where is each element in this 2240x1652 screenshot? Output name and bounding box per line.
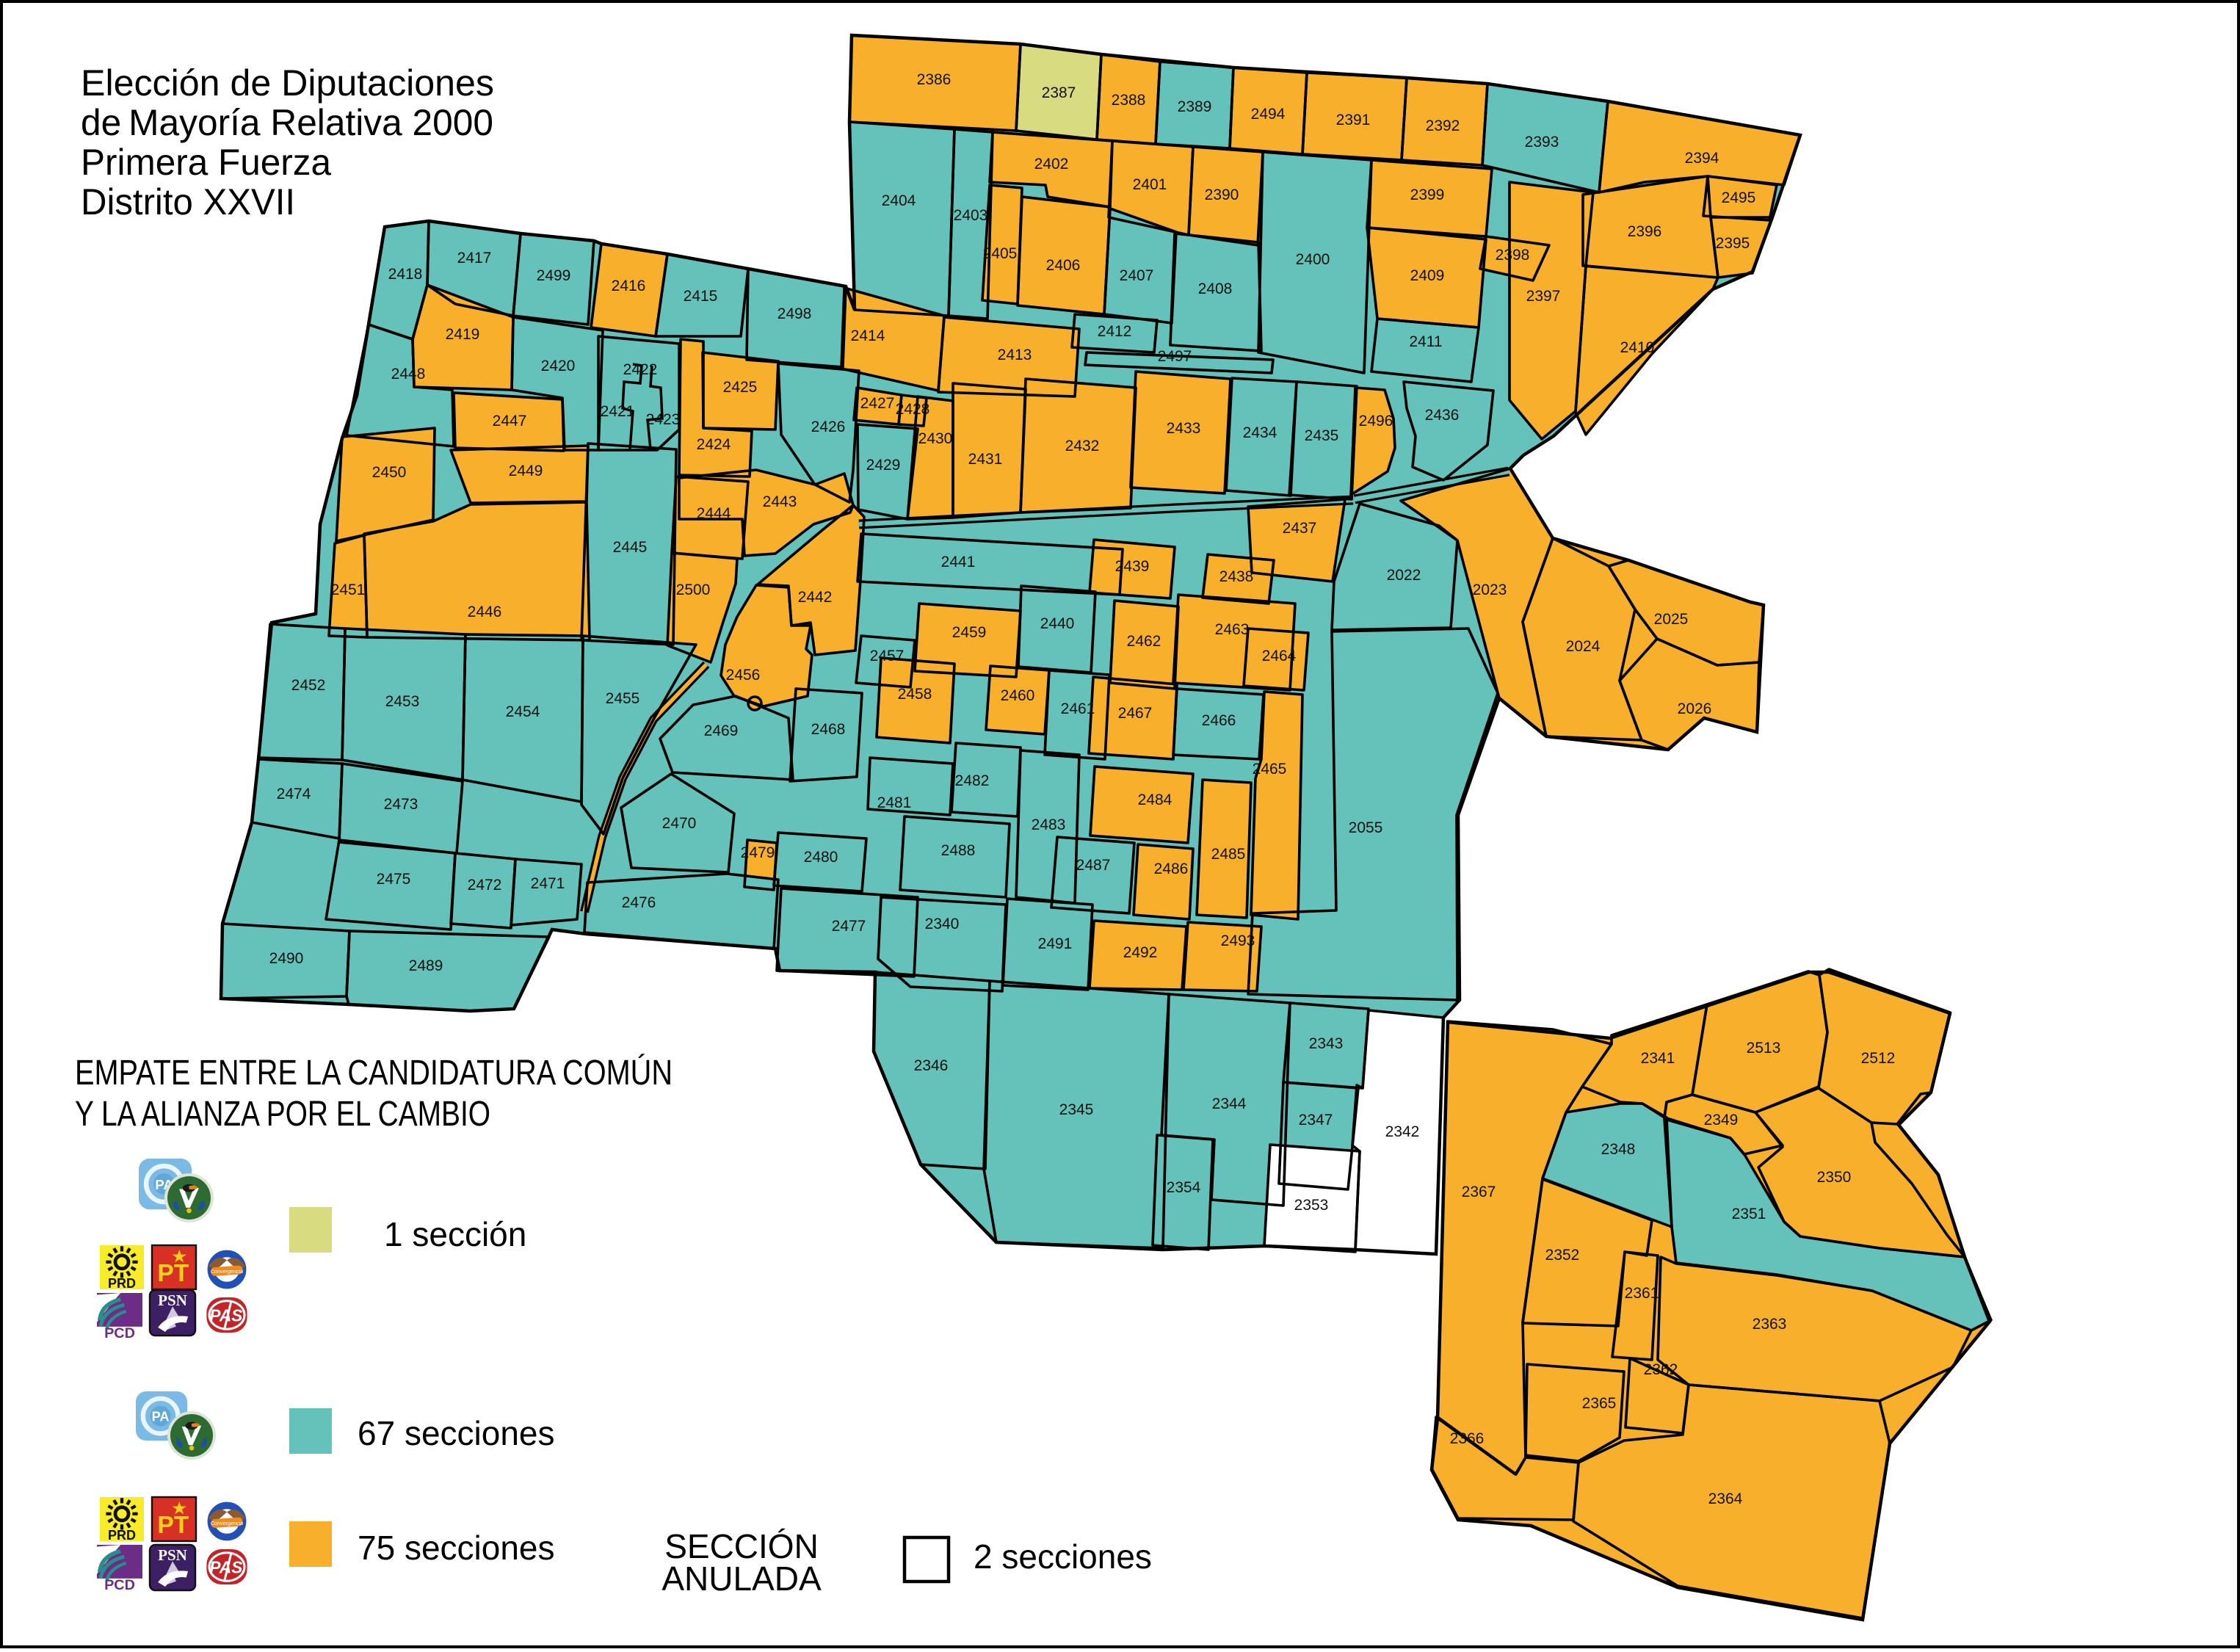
svg-text:2341: 2341: [1641, 1050, 1675, 1067]
svg-text:2434: 2434: [1243, 424, 1277, 441]
svg-text:2433: 2433: [1167, 420, 1201, 437]
svg-text:2452: 2452: [291, 677, 326, 694]
svg-text:2470: 2470: [662, 815, 697, 832]
svg-text:1 sección: 1 sección: [384, 1215, 526, 1253]
svg-text:2398: 2398: [1496, 247, 1530, 264]
svg-text:2354: 2354: [1167, 1179, 1201, 1196]
svg-text:2414: 2414: [851, 327, 885, 344]
svg-text:2353: 2353: [1294, 1197, 1329, 1214]
svg-text:75 secciones: 75 secciones: [358, 1529, 555, 1567]
svg-text:Convergencia: Convergencia: [211, 1268, 243, 1275]
svg-text:2469: 2469: [704, 722, 739, 739]
svg-text:2403: 2403: [954, 207, 988, 224]
svg-text:2492: 2492: [1123, 944, 1158, 961]
svg-text:2397: 2397: [1526, 288, 1561, 305]
svg-text:2443: 2443: [763, 493, 797, 510]
svg-text:2431: 2431: [968, 451, 1003, 468]
svg-text:2459: 2459: [952, 624, 987, 641]
svg-text:2472: 2472: [468, 877, 502, 894]
svg-text:2480: 2480: [804, 849, 838, 866]
svg-text:2458: 2458: [898, 686, 932, 703]
svg-text:2411: 2411: [1409, 333, 1442, 350]
svg-text:2416: 2416: [612, 278, 646, 294]
svg-text:2024: 2024: [1566, 638, 1601, 655]
svg-text:de Mayoría Relativa 2000: de Mayoría Relativa 2000: [81, 102, 493, 143]
svg-text:2425: 2425: [723, 379, 758, 396]
svg-text:2349: 2349: [1704, 1112, 1739, 1128]
svg-text:2479: 2479: [741, 844, 775, 861]
svg-text:2473: 2473: [384, 796, 418, 813]
svg-text:Convergencia: Convergencia: [211, 1520, 243, 1526]
svg-text:2026: 2026: [1678, 700, 1712, 717]
svg-text:2401: 2401: [1133, 176, 1167, 193]
svg-text:PT: PT: [157, 1512, 189, 1539]
svg-text:2512: 2512: [1861, 1050, 1896, 1067]
svg-text:2484: 2484: [1138, 791, 1172, 808]
svg-text:2500: 2500: [676, 582, 711, 598]
svg-text:2468: 2468: [811, 721, 846, 738]
svg-text:2025: 2025: [1654, 611, 1689, 628]
svg-text:2428: 2428: [896, 401, 930, 418]
svg-text:2419: 2419: [446, 326, 480, 343]
svg-text:2499: 2499: [537, 267, 571, 284]
svg-text:2392: 2392: [1426, 117, 1460, 134]
svg-text:2474: 2474: [277, 786, 311, 803]
svg-text:2437: 2437: [1283, 520, 1317, 537]
svg-text:Y LA ALIANZA POR EL CAMBIO: Y LA ALIANZA POR EL CAMBIO: [75, 1095, 490, 1134]
svg-text:Primera Fuerza: Primera Fuerza: [81, 142, 331, 183]
svg-text:2494: 2494: [1251, 106, 1286, 123]
svg-text:2406: 2406: [1046, 257, 1081, 274]
svg-text:2429: 2429: [866, 457, 901, 474]
svg-text:2388: 2388: [1112, 92, 1146, 109]
svg-text:2413: 2413: [998, 347, 1032, 363]
svg-text:2477: 2477: [832, 918, 866, 935]
svg-text:2441: 2441: [941, 554, 976, 570]
svg-text:2450: 2450: [372, 464, 407, 481]
svg-text:2453: 2453: [385, 693, 420, 710]
svg-text:2346: 2346: [914, 1057, 949, 1074]
svg-text:2476: 2476: [622, 894, 656, 911]
svg-text:2405: 2405: [983, 245, 1018, 262]
svg-text:2448: 2448: [391, 366, 426, 383]
svg-text:2444: 2444: [697, 505, 731, 522]
svg-text:2449: 2449: [509, 463, 543, 479]
svg-text:2495: 2495: [1722, 189, 1756, 206]
svg-text:2496: 2496: [1359, 413, 1393, 430]
svg-text:2400: 2400: [1296, 251, 1330, 268]
svg-text:2430: 2430: [918, 430, 953, 447]
svg-text:2342: 2342: [1385, 1123, 1420, 1140]
svg-text:2389: 2389: [1178, 98, 1212, 115]
svg-text:2 secciones: 2 secciones: [974, 1537, 1152, 1576]
svg-text:2423: 2423: [646, 411, 681, 428]
svg-text:Distrito XXVII: Distrito XXVII: [81, 181, 295, 222]
svg-text:2055: 2055: [1349, 819, 1383, 836]
svg-text:2438: 2438: [1219, 568, 1254, 585]
svg-text:2393: 2393: [1525, 134, 1559, 151]
svg-text:PRD: PRD: [108, 1528, 136, 1543]
svg-text:2445: 2445: [613, 539, 648, 556]
svg-text:2348: 2348: [1601, 1141, 1636, 1158]
svg-text:2386: 2386: [917, 71, 952, 88]
svg-text:2407: 2407: [1120, 267, 1154, 284]
svg-text:2447: 2447: [493, 413, 527, 430]
svg-text:2446: 2446: [468, 604, 502, 620]
svg-text:2463: 2463: [1215, 621, 1250, 638]
svg-text:2395: 2395: [1716, 235, 1750, 252]
svg-text:2362: 2362: [1644, 1361, 1678, 1378]
svg-text:2498: 2498: [778, 305, 812, 322]
svg-text:2466: 2466: [1202, 712, 1236, 729]
svg-text:PRD: PRD: [108, 1276, 136, 1291]
svg-text:2343: 2343: [1309, 1035, 1344, 1052]
svg-text:2435: 2435: [1305, 427, 1339, 444]
svg-text:2390: 2390: [1205, 186, 1239, 203]
svg-text:2482: 2482: [955, 772, 990, 789]
svg-text:2426: 2426: [811, 419, 846, 435]
svg-text:2420: 2420: [541, 358, 576, 374]
svg-text:2488: 2488: [941, 842, 976, 859]
svg-text:PT: PT: [157, 1260, 189, 1287]
svg-text:2471: 2471: [531, 875, 565, 892]
svg-text:2391: 2391: [1336, 112, 1371, 128]
svg-text:2367: 2367: [1462, 1184, 1496, 1200]
svg-text:2457: 2457: [870, 648, 905, 664]
svg-text:2460: 2460: [1001, 687, 1035, 704]
svg-text:2456: 2456: [726, 667, 761, 684]
svg-text:Elección de Diputaciones: Elección de Diputaciones: [81, 62, 494, 104]
svg-text:2396: 2396: [1628, 223, 1662, 240]
svg-text:2454: 2454: [506, 703, 540, 720]
svg-text:2465: 2465: [1253, 761, 1287, 778]
svg-text:2439: 2439: [1115, 558, 1150, 575]
svg-text:2023: 2023: [1473, 582, 1507, 598]
svg-text:2487: 2487: [1076, 857, 1111, 874]
svg-text:2464: 2464: [1262, 648, 1297, 664]
svg-text:2409: 2409: [1410, 267, 1445, 284]
svg-text:ANULADA: ANULADA: [662, 1559, 822, 1598]
svg-text:2394: 2394: [1685, 150, 1719, 167]
svg-text:2352: 2352: [1545, 1247, 1580, 1264]
svg-text:PCD: PCD: [104, 1325, 135, 1341]
svg-text:2427: 2427: [860, 395, 895, 412]
svg-text:2483: 2483: [1032, 816, 1066, 833]
svg-text:2387: 2387: [1042, 84, 1076, 101]
svg-text:2442: 2442: [798, 589, 833, 606]
svg-text:2361: 2361: [1625, 1285, 1659, 1302]
svg-text:2491: 2491: [1038, 935, 1073, 952]
svg-text:2344: 2344: [1212, 1095, 1247, 1112]
svg-text:PA: PA: [152, 1410, 170, 1424]
svg-text:2493: 2493: [1221, 932, 1255, 949]
svg-text:2402: 2402: [1034, 156, 1069, 173]
svg-text:2418: 2418: [388, 266, 423, 283]
svg-text:2440: 2440: [1040, 615, 1075, 632]
svg-text:2486: 2486: [1154, 861, 1189, 877]
svg-text:2462: 2462: [1127, 633, 1161, 650]
svg-text:2451: 2451: [331, 582, 366, 598]
svg-text:2365: 2365: [1582, 1395, 1617, 1412]
svg-text:2417: 2417: [457, 250, 492, 267]
svg-text:2345: 2345: [1059, 1101, 1094, 1118]
svg-text:EMPATE ENTRE LA CANDIDATURA C: EMPATE ENTRE LA CANDIDATURA COMÚN: [75, 1053, 673, 1093]
svg-text:2408: 2408: [1198, 280, 1233, 297]
svg-text:2412: 2412: [1098, 323, 1132, 340]
svg-text:2347: 2347: [1299, 1112, 1333, 1128]
svg-text:2399: 2399: [1410, 186, 1445, 203]
svg-text:2424: 2424: [697, 436, 731, 453]
svg-text:2461: 2461: [1061, 700, 1095, 717]
svg-text:2481: 2481: [877, 794, 912, 811]
svg-text:2340: 2340: [925, 916, 960, 932]
svg-text:2404: 2404: [882, 192, 916, 209]
svg-text:2363: 2363: [1753, 1316, 1787, 1333]
svg-text:PCD: PCD: [104, 1577, 135, 1593]
svg-text:2489: 2489: [409, 957, 443, 974]
svg-text:2490: 2490: [269, 950, 304, 967]
svg-text:2410: 2410: [1620, 339, 1655, 356]
svg-text:2485: 2485: [1211, 846, 1246, 863]
svg-text:67 secciones: 67 secciones: [358, 1414, 555, 1452]
svg-text:2513: 2513: [1747, 1040, 1781, 1057]
svg-text:2455: 2455: [606, 690, 640, 707]
svg-text:2497: 2497: [1158, 348, 1192, 365]
svg-text:2351: 2351: [1732, 1206, 1766, 1222]
svg-text:2432: 2432: [1065, 438, 1100, 454]
svg-text:2422: 2422: [623, 361, 658, 378]
svg-text:2350: 2350: [1817, 1169, 1852, 1186]
svg-text:2475: 2475: [377, 871, 411, 888]
svg-text:2467: 2467: [1118, 705, 1153, 722]
svg-text:2366: 2366: [1450, 1430, 1485, 1447]
svg-text:2415: 2415: [684, 288, 718, 305]
svg-text:2436: 2436: [1425, 407, 1460, 424]
svg-text:2022: 2022: [1387, 567, 1421, 584]
svg-text:2364: 2364: [1708, 1490, 1743, 1507]
svg-text:2421: 2421: [601, 403, 635, 420]
